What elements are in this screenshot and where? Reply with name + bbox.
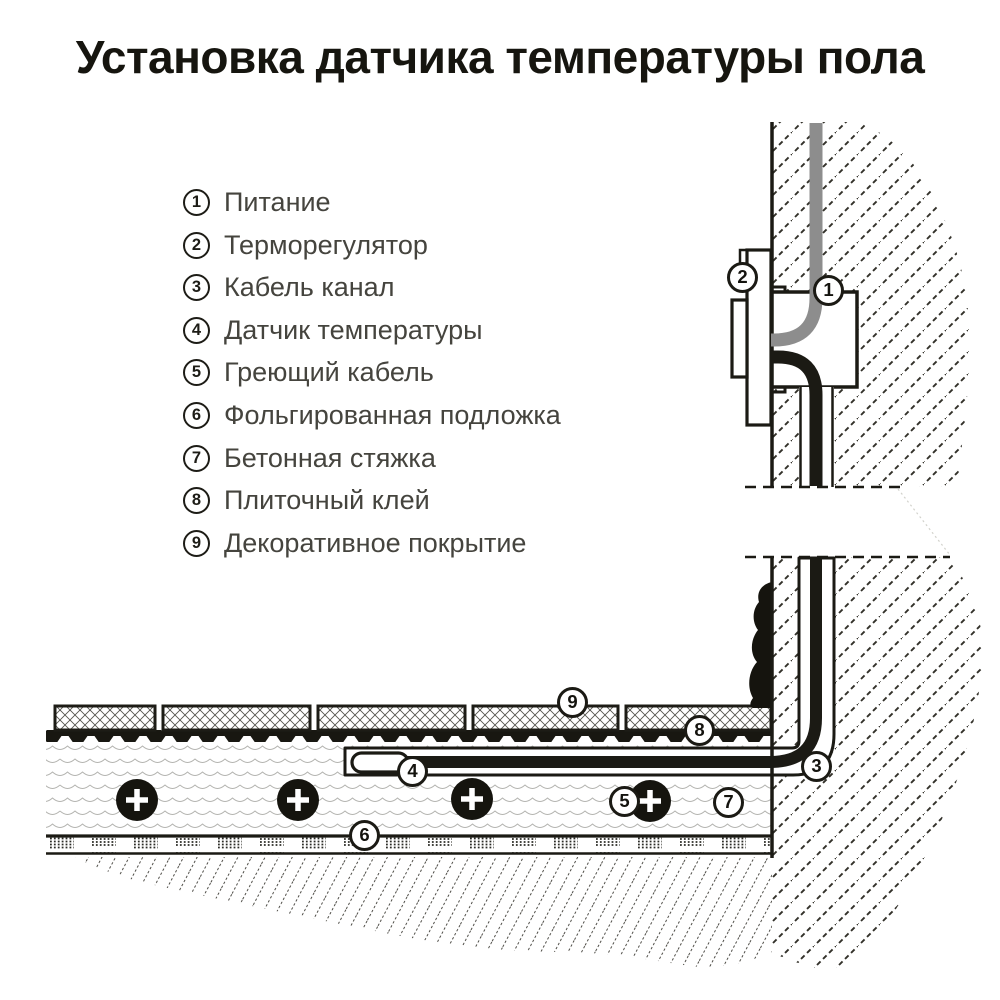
section-break-lines <box>745 487 950 557</box>
foil-underlay-layer <box>46 836 772 854</box>
callout-8-adhesive: 8 <box>684 715 715 746</box>
decorative-tiles <box>55 706 771 730</box>
callout-2-thermostat: 2 <box>727 262 758 293</box>
callout-5-heating-cable: 5 <box>609 786 640 817</box>
subfloor-hatch <box>75 857 772 967</box>
callout-4-sensor: 4 <box>397 756 428 787</box>
infographic-page: Установка датчика температуры пола 1Пита… <box>0 0 1000 1000</box>
callout-9-covering: 9 <box>557 687 588 718</box>
tile-adhesive-layer <box>46 730 772 742</box>
callout-1-power: 1 <box>813 275 844 306</box>
callout-3-conduit: 3 <box>801 751 832 782</box>
callout-7-screed: 7 <box>713 787 744 818</box>
junction-bead <box>749 582 772 708</box>
callout-6-foil-underlay: 6 <box>349 820 380 851</box>
cross-section-diagram <box>0 0 1000 1000</box>
